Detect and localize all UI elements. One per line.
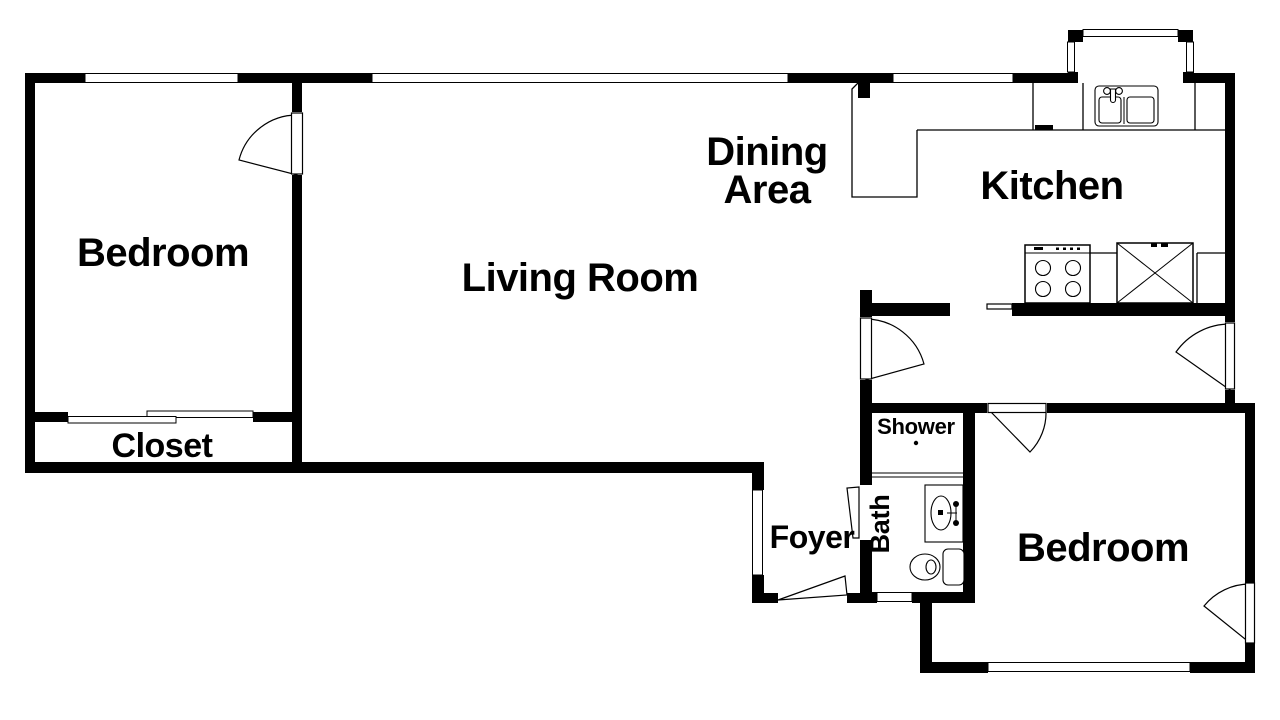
bedroom-top-label: Bedroom: [77, 231, 249, 275]
bath-label: Bath: [865, 495, 895, 554]
floor-plan-svg: Bedroom Living Room Dining Area Kitchen …: [0, 0, 1280, 720]
kitchen-label: Kitchen: [980, 164, 1123, 208]
floor-plan: Bedroom Living Room Dining Area Kitchen …: [0, 0, 1280, 720]
shower-pan-icon: [872, 441, 963, 477]
kitchen-window-icon: [893, 74, 1013, 83]
bay-window-icon: [1068, 30, 1194, 73]
bedroom-top-door-icon: [239, 113, 303, 175]
bedroom-bottom-label: Bedroom: [1017, 526, 1189, 570]
hall-exterior-door-icon: [1176, 323, 1235, 390]
dining-area-label-line2: Area: [724, 168, 812, 212]
bedroom-bottom-exterior-door-icon: [1204, 583, 1255, 643]
bedroom-bottom-hall-door-icon: [988, 404, 1046, 453]
living-to-hall-door-icon: [861, 318, 925, 380]
shower-label: Shower: [877, 414, 955, 439]
shower-dot: [914, 441, 918, 445]
bath-sink-icon: [925, 485, 963, 542]
foyer-label: Foyer: [770, 519, 855, 555]
entry-door-icon: [778, 576, 847, 600]
living-room-window-icon: [372, 74, 788, 83]
walls: [25, 30, 1255, 673]
closet-sliding-doors-icon: [68, 411, 253, 423]
bedroom-top-window-icon: [85, 74, 238, 83]
bath-window-icon: [877, 593, 912, 602]
foyer-window-icon: [753, 490, 763, 575]
bedroom-bottom-window-icon: [988, 663, 1190, 672]
refrigerator-icon: [1117, 243, 1193, 303]
stove-icon: [1025, 245, 1090, 303]
kitchen-opening-door-icon: [987, 304, 1012, 309]
kitchen-sink-icon: [1095, 86, 1158, 126]
living-room-label: Living Room: [462, 256, 699, 300]
closet-label: Closet: [112, 427, 213, 465]
toilet-icon: [910, 549, 964, 585]
